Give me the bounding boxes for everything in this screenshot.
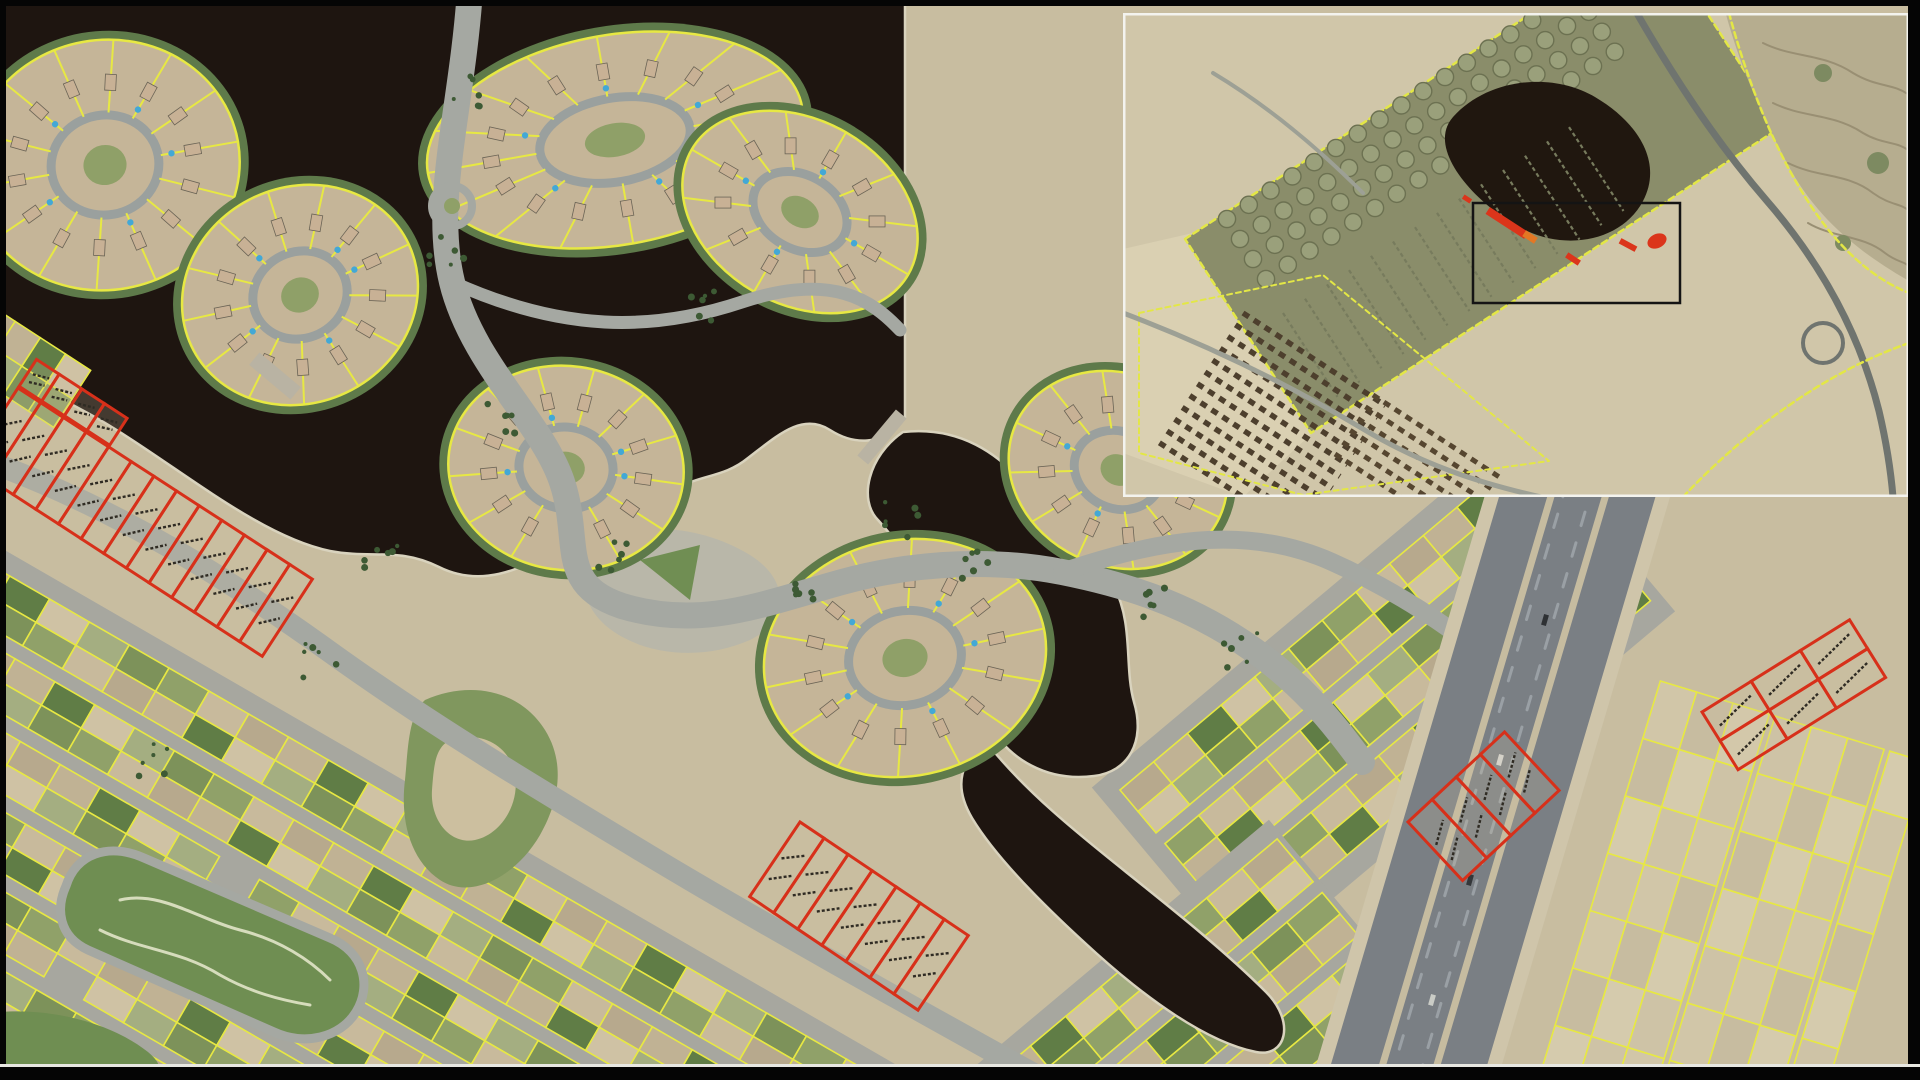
- image-frame-left: [0, 0, 6, 1080]
- image-frame-top: [0, 0, 1920, 6]
- annotated-satellite-map: [0, 0, 1920, 1080]
- inset-green-patch: [1814, 64, 1832, 82]
- roundabout-center: [444, 198, 460, 214]
- satellite-map-figure: [0, 0, 1920, 1080]
- image-frame-bottom: [0, 1067, 1920, 1080]
- inset-green-patch: [1835, 235, 1851, 251]
- inset-green-patch: [1867, 152, 1889, 174]
- image-frame-white-line: [0, 1064, 1920, 1067]
- image-frame-right: [1908, 0, 1920, 1080]
- inset-overview-map: [1118, 0, 1909, 536]
